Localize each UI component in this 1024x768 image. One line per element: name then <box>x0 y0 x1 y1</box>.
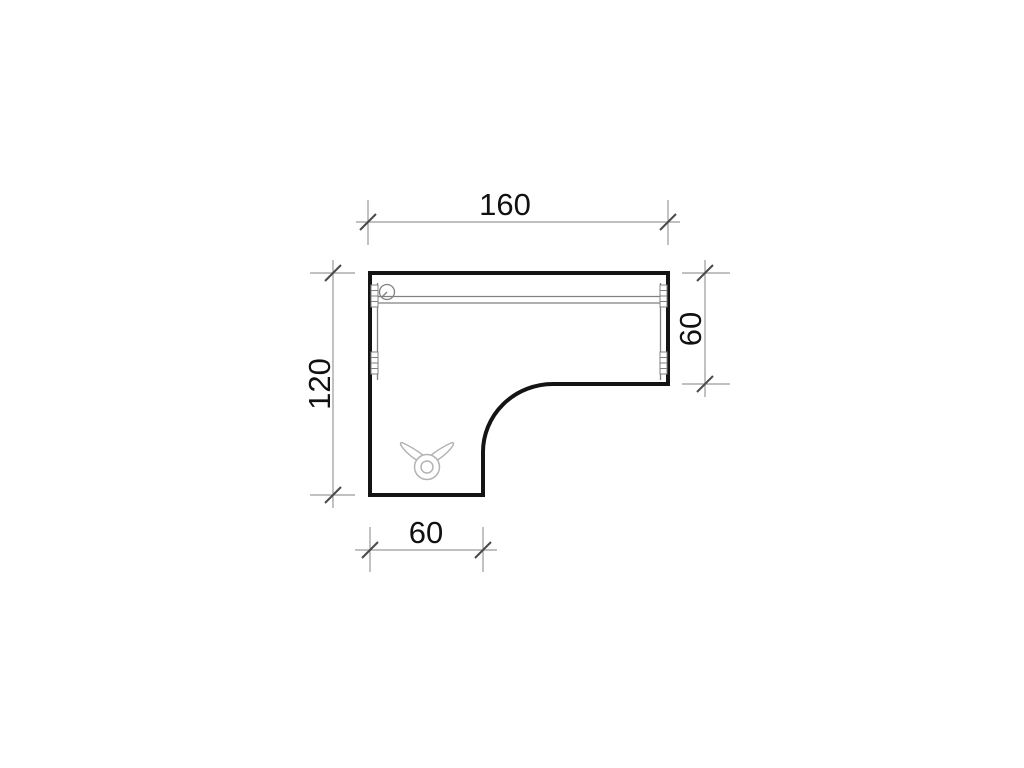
dimension-label-depth-left: 120 <box>302 358 337 410</box>
mounting-bracket-icon <box>660 285 667 307</box>
mounting-bracket-icon <box>660 352 667 374</box>
technical-drawing-canvas: 160 120 60 60 <box>0 0 1024 768</box>
dimension-label-width-top: 160 <box>479 187 531 222</box>
mounting-bracket-icon <box>371 352 378 374</box>
mounting-bracket-icon <box>371 285 378 307</box>
dimension-label-depth-right: 60 <box>673 312 708 346</box>
desk-plan-drawing: 160 120 60 60 <box>0 0 1024 768</box>
dimension-width-top: 160 <box>356 187 680 245</box>
dimension-depth-left: 120 <box>302 260 355 508</box>
dimension-label-width-bottom-leg: 60 <box>409 515 443 550</box>
dimension-depth-right: 60 <box>673 260 730 397</box>
desktop-outline <box>370 273 668 495</box>
dimension-width-bottom-leg: 60 <box>355 515 497 572</box>
